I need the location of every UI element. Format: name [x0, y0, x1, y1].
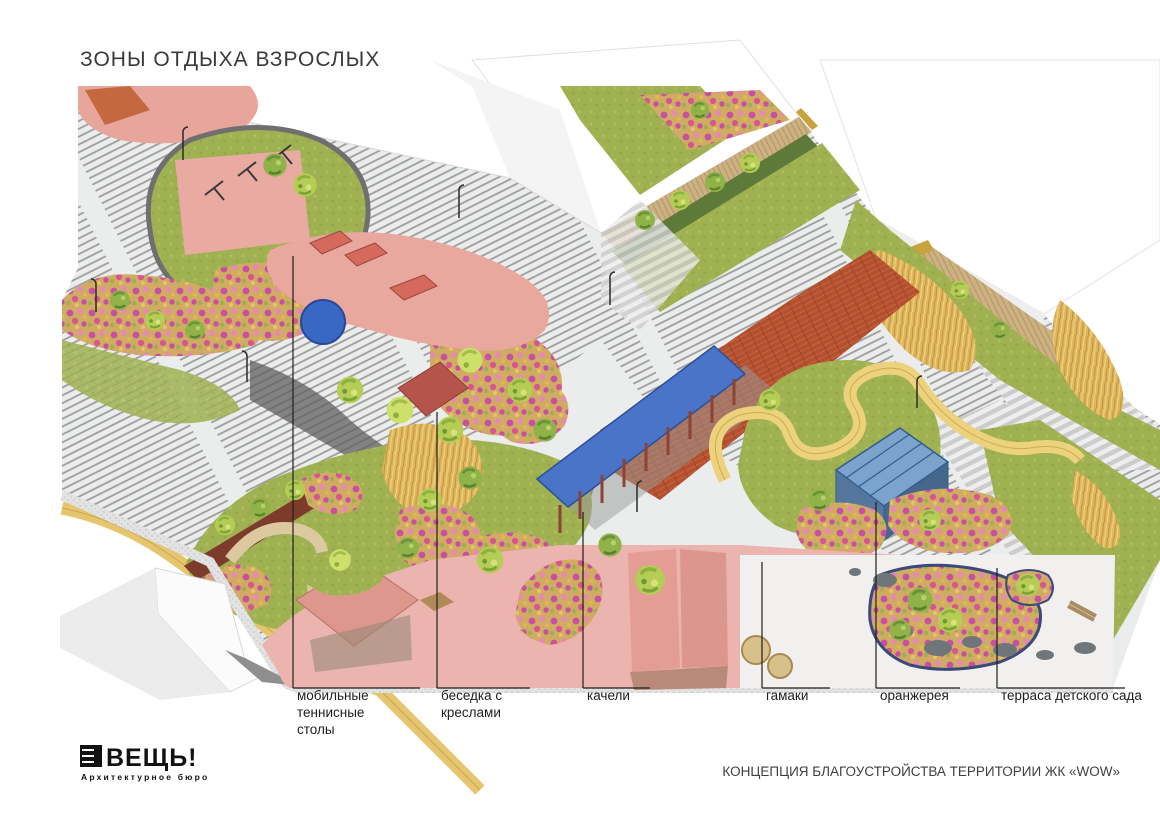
svg-text:беседка с: беседка с — [441, 688, 502, 703]
svg-text:терраса детского сада: терраса детского сада — [1001, 688, 1142, 703]
svg-text:ВЕЩЬ!: ВЕЩЬ! — [106, 744, 198, 772]
svg-text:качели: качели — [587, 688, 630, 703]
svg-text:оранжерея: оранжерея — [880, 688, 949, 703]
svg-text:Архитектурное бюро: Архитектурное бюро — [81, 772, 209, 782]
svg-text:креслами: креслами — [441, 705, 501, 720]
svg-text:КОНЦЕПЦИЯ БЛАГОУСТРОЙСТВА ТЕРР: КОНЦЕПЦИЯ БЛАГОУСТРОЙСТВА ТЕРРИТОРИИ ЖК … — [722, 764, 1120, 779]
svg-text:гамаки: гамаки — [766, 688, 808, 703]
svg-text:ЗОНЫ ОТДЫХА ВЗРОСЛЫХ: ЗОНЫ ОТДЫХА ВЗРОСЛЫХ — [80, 48, 380, 71]
svg-text:столы: столы — [297, 722, 335, 737]
svg-text:мобильные: мобильные — [297, 688, 369, 703]
svg-text:теннисные: теннисные — [297, 705, 364, 720]
